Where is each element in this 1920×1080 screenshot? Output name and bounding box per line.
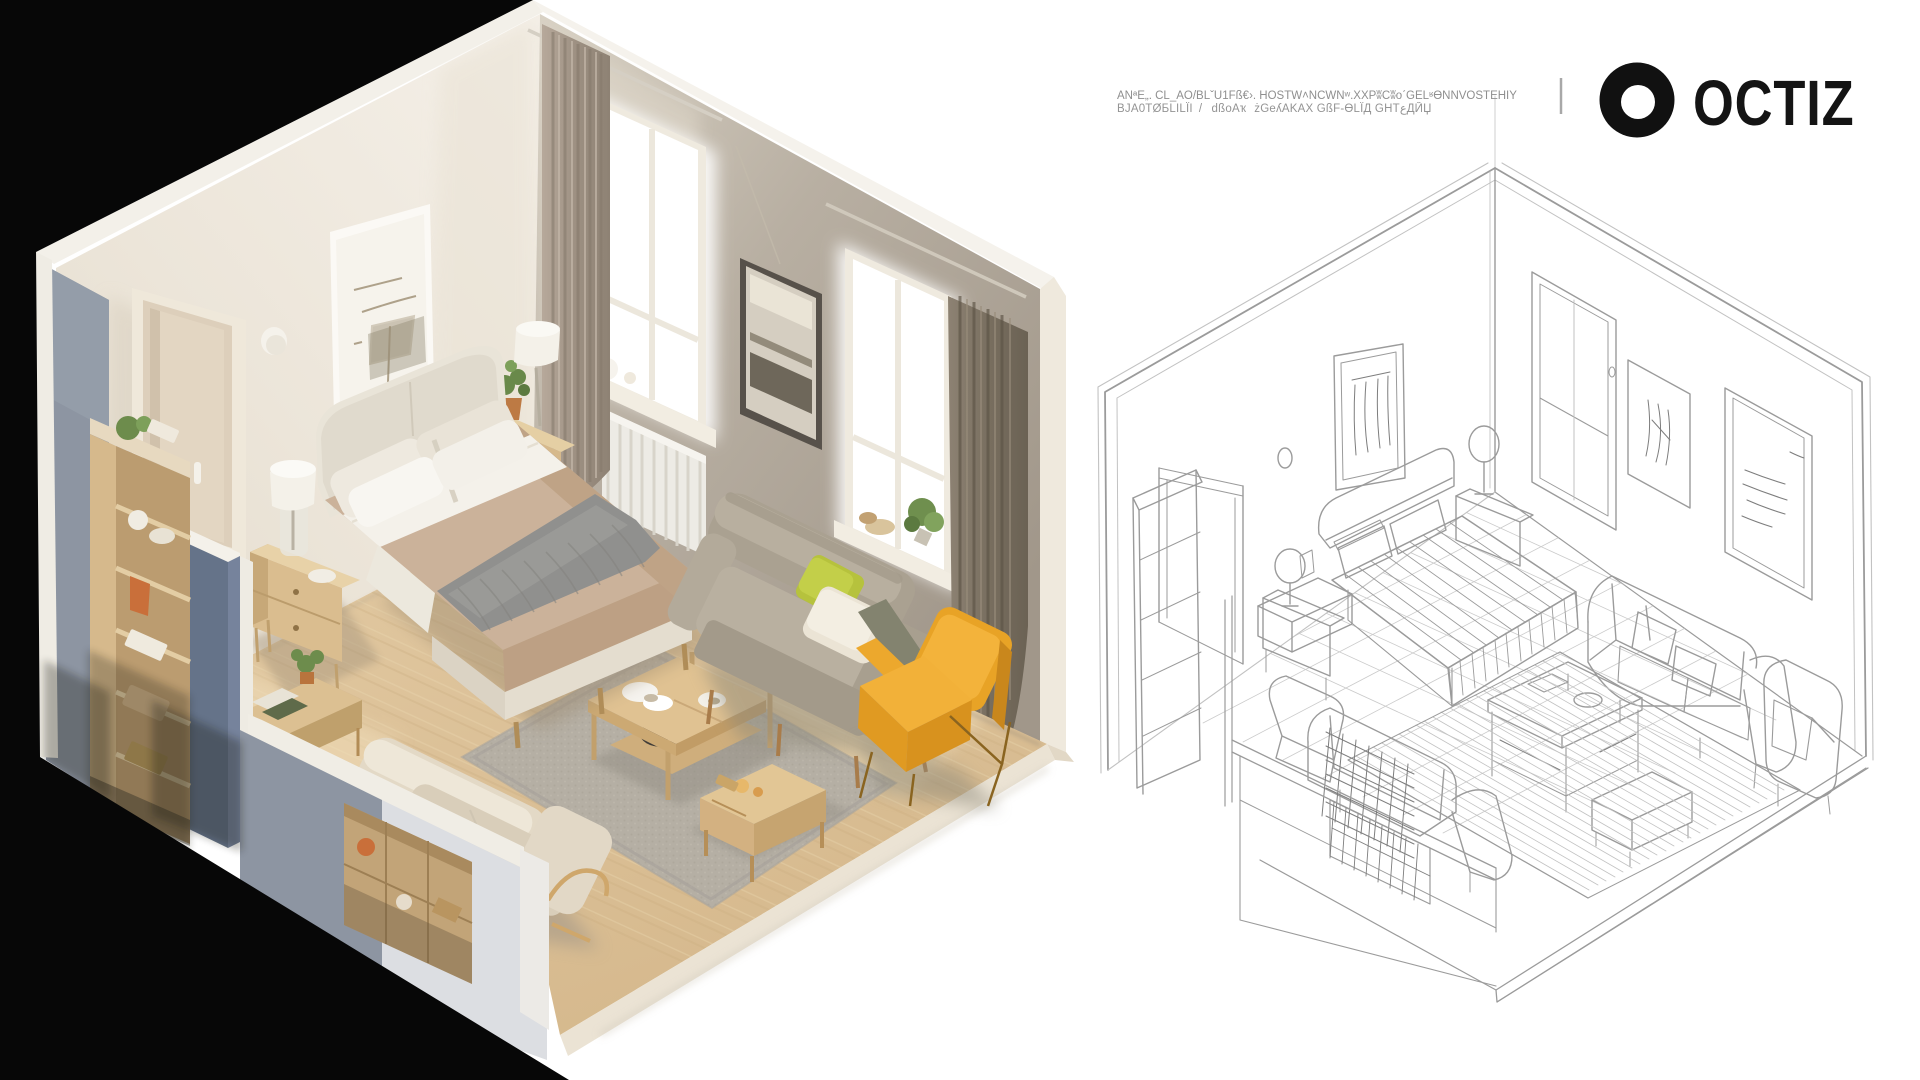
svg-text:OCTIZ: OCTIZ xyxy=(1693,68,1854,139)
svg-text:ANªE„. CL_AO/BLˇU1Fß€›. HOSTW˄: ANªE„. CL_AO/BLˇU1Fß€›. HOSTW˄NCWNʷ.XXPʬ… xyxy=(1117,90,1517,102)
svg-text:BJA0TØБLΙLЇӀ / dßoAҡ żGеʎA: BJA0TØБLΙLЇӀ / dßoAҡ żGеʎAKАX GßF-ƟLЇД G… xyxy=(1117,102,1432,115)
